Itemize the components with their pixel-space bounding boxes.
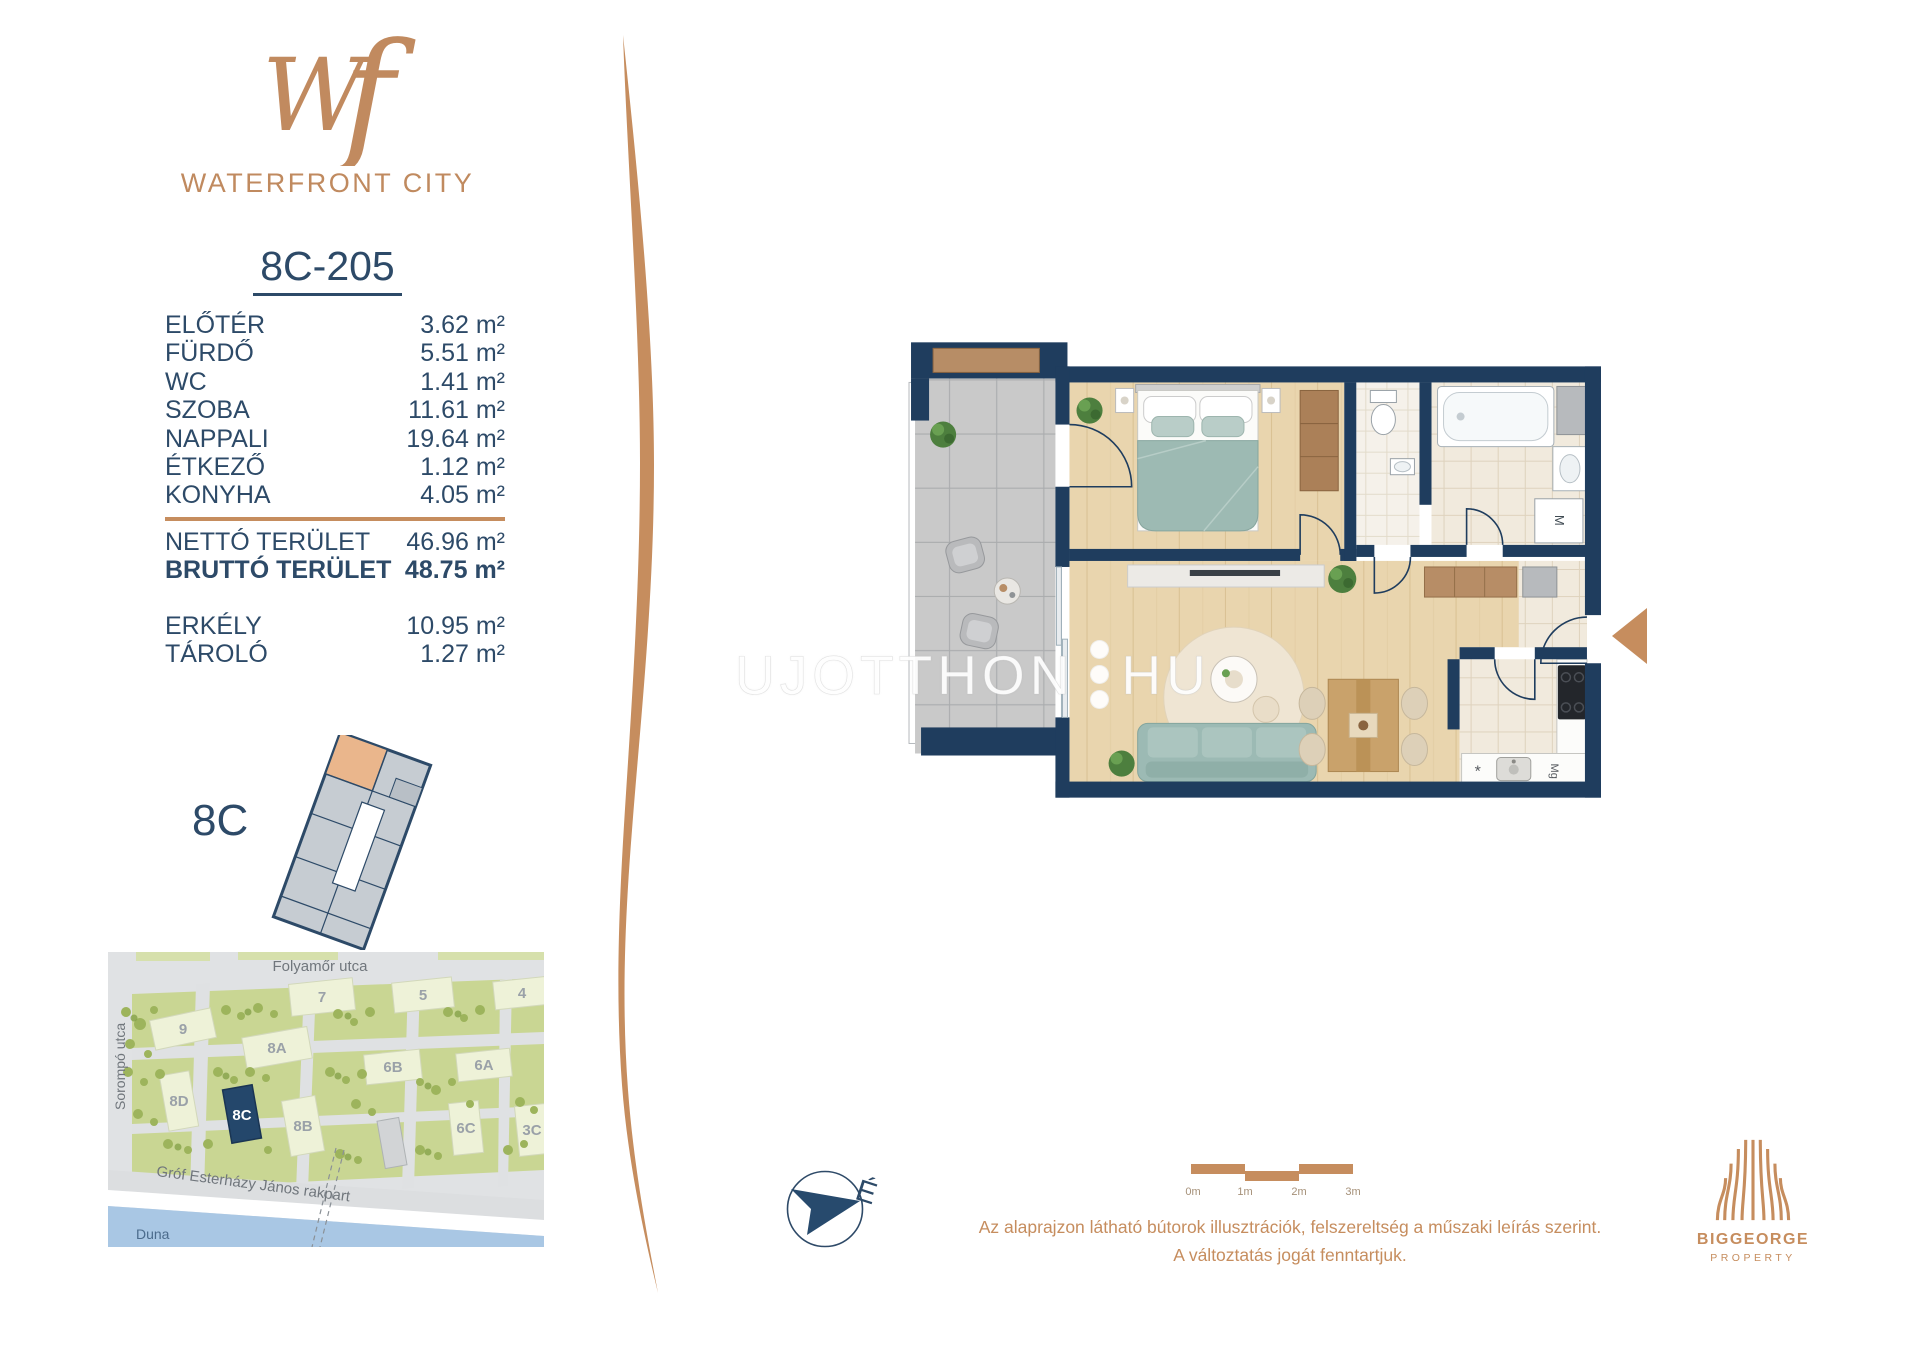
sofa-plant — [1109, 750, 1135, 776]
disclaimer-line1: Az alaprajzon látható bútorok illusztrác… — [960, 1213, 1620, 1241]
watermark-dots — [1090, 640, 1109, 709]
storage-row: TÁROLÓ1.27 m² — [165, 640, 505, 668]
scale-tick: 3m — [1345, 1186, 1360, 1198]
map-label-8C: 8C — [232, 1107, 251, 1124]
bathroom-sink — [1553, 447, 1587, 491]
balcony-table — [994, 578, 1020, 604]
map-label-8B: 8B — [293, 1118, 312, 1135]
area-row: WC1.41 m² — [165, 368, 505, 396]
site-map: 9 7 5 4 8A 6B 6A 8D 8B 6C 3C 8C Folyamőr… — [108, 952, 544, 1247]
scale-tick: 0m — [1185, 1186, 1200, 1198]
map-label-3C: 3C — [522, 1122, 541, 1139]
svg-text:M: M — [1552, 515, 1567, 526]
hall-console — [1424, 567, 1516, 597]
side-table — [1253, 696, 1279, 722]
scale-tick: 1m — [1237, 1186, 1252, 1198]
washing-machine: M — [1535, 499, 1583, 543]
section-divider — [600, 25, 690, 1305]
map-label-7: 7 — [318, 989, 326, 1006]
waterfront-monogram-logo: W f — [258, 28, 423, 166]
river-label: Duna — [136, 1226, 170, 1242]
balcony-row: ERKÉLY10.95 m² — [165, 612, 505, 640]
balcony-plant — [930, 422, 956, 448]
map-label-6C: 6C — [456, 1120, 475, 1137]
watermark-left: UJOTTHON — [735, 643, 1074, 707]
monogram-f: f — [333, 28, 416, 166]
unit-title: 8C-205 — [100, 243, 555, 296]
watermark: UJOTTHON HU — [735, 640, 1211, 709]
map-label-8D: 8D — [169, 1093, 188, 1110]
map-label-6A: 6A — [474, 1057, 493, 1074]
hall-cabinet — [1523, 567, 1557, 597]
area-row: KONYHA4.05 m² — [165, 481, 505, 509]
developer-division: PROPERTY — [1678, 1252, 1828, 1264]
bedroom-plant — [1076, 397, 1102, 423]
map-label-9: 9 — [179, 1021, 187, 1038]
area-row: FÜRDŐ5.51 m² — [165, 339, 505, 367]
table-separator — [165, 517, 505, 521]
microwave-label: Mg — [1548, 764, 1560, 779]
tv — [1190, 570, 1280, 576]
bed — [1136, 384, 1260, 530]
entrance-arrow-icon — [1612, 608, 1647, 664]
keyplan: 8C — [140, 735, 460, 950]
scale-tick: 2m — [1291, 1186, 1306, 1198]
area-row: SZOBA11.61 m² — [165, 396, 505, 424]
map-label-8A: 8A — [267, 1040, 286, 1057]
disclaimer-line2: A változtatás jogát fenntartjuk. — [960, 1241, 1620, 1269]
area-row: NAPPALI19.64 m² — [165, 425, 505, 453]
area-table: ELŐTÉR3.62 m² FÜRDŐ5.51 m² WC1.41 m² SZO… — [165, 311, 505, 668]
gross-area-row: BRUTTÓ TERÜLET48.75 m² — [165, 556, 505, 584]
map-label-4: 4 — [518, 985, 527, 1002]
developer-name: BIGGEORGE — [1678, 1231, 1828, 1249]
street-label-left: Sorompó utca — [112, 1023, 128, 1110]
scale-bar: 0m 1m 2m 3m — [1191, 1164, 1371, 1200]
map-label-6B: 6B — [383, 1059, 402, 1076]
counter-symbol: * — [1475, 763, 1481, 781]
developer-logo: BIGGEORGE PROPERTY — [1678, 1138, 1828, 1264]
sofa — [1138, 723, 1317, 781]
bathtub — [1438, 386, 1554, 446]
living-plant — [1328, 565, 1356, 593]
street-label-top: Folyamőr utca — [272, 958, 368, 975]
wardrobe — [1300, 390, 1338, 490]
keyplan-plate — [273, 735, 430, 950]
map-label-5: 5 — [419, 987, 427, 1004]
unit-id: 8C-205 — [253, 243, 401, 296]
compass-icon — [784, 1168, 868, 1252]
disclaimer: Az alaprajzon látható bútorok illusztrác… — [960, 1213, 1620, 1269]
net-area-row: NETTÓ TERÜLET46.96 m² — [165, 528, 505, 556]
watermark-right: HU — [1121, 643, 1210, 707]
lintel-wood — [933, 348, 1039, 372]
keyplan-building-label: 8C — [192, 796, 248, 845]
floorplan: * Mg M — [903, 326, 1605, 828]
biggeorge-mark-icon — [1714, 1138, 1792, 1222]
brand-name: WATERFRONT CITY — [100, 168, 555, 199]
area-row: ELŐTÉR3.62 m² — [165, 311, 505, 339]
toilet — [1370, 390, 1396, 434]
area-row: ÉTKEZŐ1.12 m² — [165, 453, 505, 481]
shaft — [1557, 386, 1587, 434]
